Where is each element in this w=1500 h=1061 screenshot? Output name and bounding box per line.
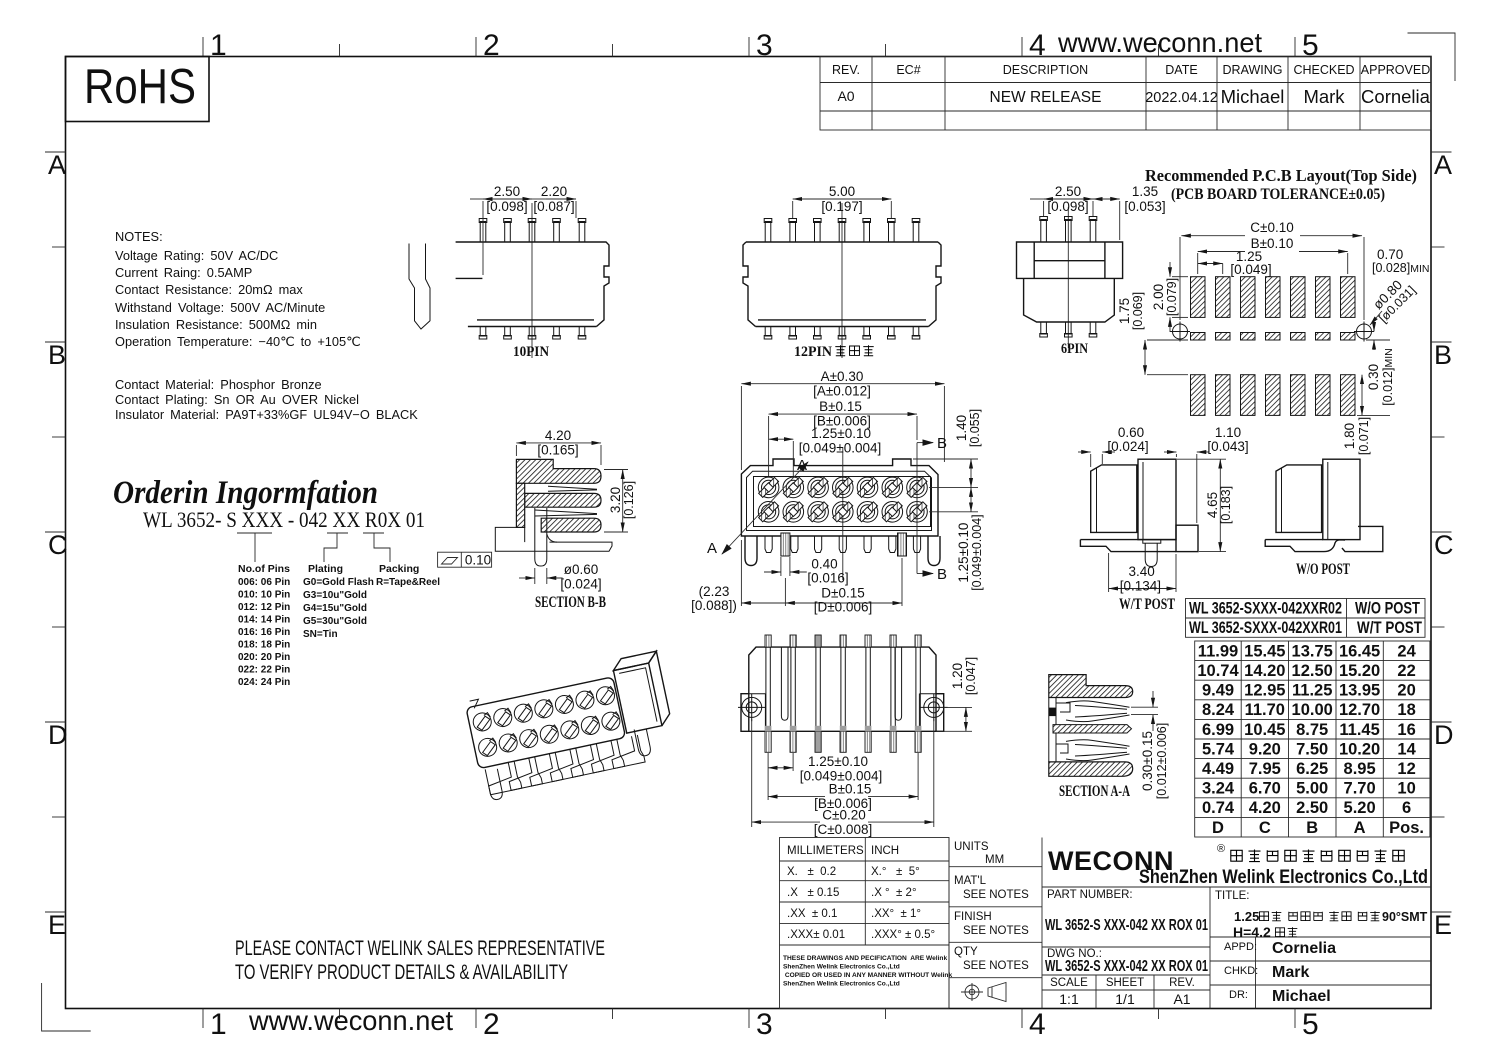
- svg-text:3: 3: [756, 1008, 773, 1041]
- svg-text:COPIED OR USED IN ANY MANNER W: COPIED OR USED IN ANY MANNER WITHOUT Wel…: [783, 972, 952, 979]
- svg-text:[0.165]: [0.165]: [537, 443, 578, 458]
- svg-text:Cornelia: Cornelia: [1272, 940, 1336, 957]
- svg-text:4.20: 4.20: [1249, 799, 1281, 817]
- svg-text:18: 18: [1397, 701, 1415, 719]
- svg-text:REV.: REV.: [1169, 977, 1195, 989]
- svg-text:010: 10 Pin: 010: 10 Pin: [238, 590, 290, 601]
- svg-text:10.74: 10.74: [1197, 662, 1239, 680]
- svg-text:020: 20 Pin: 020: 20 Pin: [238, 652, 290, 663]
- svg-text:Pos.: Pos.: [1389, 819, 1424, 837]
- svg-text:11.25: 11.25: [1292, 682, 1332, 700]
- svg-text:[0.183]: [0.183]: [1219, 486, 1233, 524]
- svg-text:[0.047]: [0.047]: [964, 657, 978, 695]
- svg-text:6.99: 6.99: [1202, 721, 1234, 739]
- svg-text:3.24: 3.24: [1202, 780, 1235, 798]
- svg-text:Michael: Michael: [1272, 988, 1331, 1005]
- svg-text:[0.098]: [0.098]: [1047, 199, 1088, 214]
- svg-text:10.45: 10.45: [1244, 721, 1285, 739]
- svg-text:APPROVED: APPROVED: [1361, 63, 1430, 77]
- svg-text:4.65: 4.65: [1205, 492, 1220, 518]
- svg-text:0.60: 0.60: [1118, 425, 1144, 440]
- svg-text:2.50: 2.50: [494, 184, 520, 199]
- svg-text:MM: MM: [985, 854, 1004, 866]
- svg-text:7.50: 7.50: [1296, 740, 1328, 758]
- svg-text:12.70: 12.70: [1339, 701, 1380, 719]
- svg-text:0.10: 0.10: [465, 553, 491, 568]
- svg-text:7.70: 7.70: [1344, 780, 1376, 798]
- svg-text:[0.197]: [0.197]: [821, 199, 862, 214]
- svg-text:4: 4: [1029, 1008, 1046, 1041]
- svg-text:REV.: REV.: [832, 63, 860, 77]
- svg-text:W/T POST: W/T POST: [1357, 619, 1422, 637]
- svg-text:6.25: 6.25: [1296, 760, 1328, 778]
- svg-text:X. ± 0.2: X. ± 0.2: [787, 866, 836, 878]
- svg-text:8.75: 8.75: [1296, 721, 1328, 739]
- svg-text:B: B: [937, 566, 947, 583]
- svg-text:[0.069]: [0.069]: [1131, 292, 1145, 330]
- svg-text:INCH: INCH: [871, 845, 899, 857]
- svg-text:NOTES:: NOTES:: [115, 229, 163, 244]
- svg-text:5: 5: [1302, 29, 1319, 62]
- svg-text:W/T POST: W/T POST: [1119, 596, 1175, 613]
- svg-text:MAT'L: MAT'L: [954, 875, 987, 887]
- svg-text:[0.024]: [0.024]: [1107, 439, 1148, 454]
- svg-text:WL 3652-S XXX-042 XX ROX 01: WL 3652-S XXX-042 XX ROX 01: [1045, 958, 1208, 975]
- svg-text:CHECKED: CHECKED: [1293, 63, 1354, 77]
- svg-text:11.70: 11.70: [1245, 701, 1285, 719]
- svg-text:www.weconn.net: www.weconn.net: [248, 1005, 453, 1036]
- svg-text:8.95: 8.95: [1344, 760, 1376, 778]
- svg-text:Packing: Packing: [379, 563, 419, 575]
- svg-text:2.00: 2.00: [1151, 284, 1166, 310]
- svg-text:22: 22: [1397, 662, 1415, 680]
- svg-text:1.20: 1.20: [950, 663, 965, 689]
- svg-text:QTY: QTY: [954, 946, 978, 958]
- svg-text:Mark: Mark: [1272, 964, 1309, 981]
- svg-text:A: A: [1434, 150, 1452, 180]
- svg-text:[C±0.008]: [C±0.008]: [814, 822, 872, 837]
- svg-text:.XXX± 0.01: .XXX± 0.01: [787, 929, 845, 941]
- svg-text:[0.043]: [0.043]: [1207, 439, 1248, 454]
- svg-text:1.10: 1.10: [1215, 425, 1241, 440]
- svg-text:6: 6: [1402, 799, 1411, 817]
- svg-text:024: 24 Pin: 024: 24 Pin: [238, 677, 290, 688]
- svg-text:022: 22 Pin: 022: 22 Pin: [238, 665, 290, 676]
- svg-text:1.25: 1.25: [1234, 909, 1259, 924]
- svg-text:X.° ± 5°: X.° ± 5°: [871, 866, 920, 878]
- svg-text:[0.049±0.004]: [0.049±0.004]: [799, 441, 881, 456]
- svg-text:CHKD:: CHKD:: [1224, 965, 1258, 977]
- svg-text:012: 12 Pin: 012: 12 Pin: [238, 602, 290, 613]
- svg-text:PLEASE CONTACT WELINK SALES RE: PLEASE CONTACT WELINK SALES REPRESENTATI…: [235, 937, 605, 960]
- svg-text:®: ®: [1217, 843, 1225, 855]
- svg-text:B: B: [1434, 340, 1452, 370]
- svg-text:Contact Plating: Sn OR Au OVER: Contact Plating: Sn OR Au OVER Nickel: [115, 392, 359, 407]
- svg-text:C±0.20: C±0.20: [822, 808, 865, 823]
- svg-text:4.20: 4.20: [545, 428, 571, 443]
- svg-text:5.00: 5.00: [1296, 780, 1328, 798]
- svg-text:(2.23: (2.23: [699, 584, 730, 599]
- svg-text:014: 14 Pin: 014: 14 Pin: [238, 615, 290, 626]
- svg-text:1: 1: [210, 29, 227, 62]
- svg-text:G0=Gold Flash: G0=Gold Flash: [303, 577, 374, 588]
- svg-text:A: A: [707, 540, 717, 557]
- svg-text:Contact Material: Phosphor Bro: Contact Material: Phosphor Bronze: [115, 377, 322, 392]
- svg-text:Recommended P.C.B Layout(Top S: Recommended P.C.B Layout(Top Side): [1145, 166, 1417, 185]
- svg-text:12.50: 12.50: [1292, 662, 1333, 680]
- svg-text:11.45: 11.45: [1339, 721, 1379, 739]
- svg-text:www.weconn.net: www.weconn.net: [1057, 27, 1262, 58]
- svg-text:016: 16 Pin: 016: 16 Pin: [238, 627, 290, 638]
- svg-text:.XXX° ± 0.5°: .XXX° ± 0.5°: [871, 929, 935, 941]
- svg-text:8.24: 8.24: [1202, 701, 1235, 719]
- svg-text:C: C: [1259, 819, 1271, 837]
- svg-text:E: E: [48, 910, 66, 940]
- svg-text:10: 10: [1397, 780, 1415, 798]
- svg-text:D: D: [1212, 819, 1224, 837]
- svg-text:.X ± 0.15: .X ± 0.15: [787, 887, 839, 899]
- svg-text:R=Tape&Reel: R=Tape&Reel: [376, 577, 440, 588]
- svg-text:10PIN: 10PIN: [513, 344, 549, 360]
- svg-text:A: A: [1354, 819, 1366, 837]
- svg-text:D±0.15: D±0.15: [821, 586, 864, 601]
- svg-text:B±0.15: B±0.15: [829, 782, 872, 797]
- svg-text:24: 24: [1397, 643, 1416, 661]
- svg-text:ShenZhen Welink Electronics Co: ShenZhen Welink Electronics Co.,Ltd: [1139, 867, 1428, 888]
- svg-text:Mark: Mark: [1303, 86, 1345, 107]
- svg-text:3.40: 3.40: [1128, 564, 1154, 579]
- svg-text:WL 3652- S XXX - 042 XX R0X: WL 3652- S XXX - 042 XX R0X 01: [143, 507, 425, 532]
- svg-text:FINISH: FINISH: [954, 911, 992, 923]
- svg-text:16: 16: [1397, 721, 1415, 739]
- svg-text:SHEET: SHEET: [1106, 977, 1144, 989]
- svg-text:Insulator Material: PA9T+33%GF: Insulator Material: PA9T+33%GF UL94V−O B…: [115, 407, 418, 422]
- svg-text:Voltage Rating: 50V AC/DC: Voltage Rating: 50V AC/DC: [115, 248, 278, 263]
- svg-text:DRAWING: DRAWING: [1223, 63, 1283, 77]
- svg-text:Insulation Resistance: 500MΩ m: Insulation Resistance: 500MΩ min: [115, 317, 317, 332]
- svg-text:H=4.2: H=4.2: [1233, 924, 1271, 940]
- svg-text:[A±0.012]: [A±0.012]: [813, 384, 871, 399]
- svg-text:APPD:: APPD:: [1224, 941, 1257, 953]
- svg-text:14: 14: [1397, 740, 1416, 758]
- svg-text:20: 20: [1397, 682, 1415, 700]
- svg-text:SCALE: SCALE: [1050, 977, 1088, 989]
- svg-text:2022.04.12: 2022.04.12: [1145, 90, 1218, 106]
- svg-text:Orderin Ingormfation: Orderin Ingormfation: [113, 475, 378, 511]
- svg-text:WL 3652-S XXX-042 XX ROX 01: WL 3652-S XXX-042 XX ROX 01: [1045, 917, 1208, 934]
- svg-text:G4=15u"Gold: G4=15u"Gold: [303, 603, 367, 614]
- svg-text:ShenZhen Welink Electronics Co: ShenZhen Welink Electronics Co.,Ltd: [783, 981, 900, 988]
- svg-text:ShenZhen Welink Electronics Co: ShenZhen Welink Electronics Co.,Ltd: [783, 964, 900, 971]
- svg-text:1.35: 1.35: [1132, 184, 1158, 199]
- svg-text:A±0.30: A±0.30: [821, 369, 864, 384]
- svg-text:10.20: 10.20: [1339, 740, 1380, 758]
- svg-text:[0.055]: [0.055]: [968, 409, 982, 447]
- svg-text:D: D: [48, 720, 68, 750]
- svg-text:006: 06 Pin: 006: 06 Pin: [238, 577, 290, 588]
- svg-text:[0.134]: [0.134]: [1120, 579, 1161, 594]
- svg-text:PART NUMBER:: PART NUMBER:: [1047, 889, 1133, 901]
- svg-text:WL 3652-SXXX-042XXR01: WL 3652-SXXX-042XXR01: [1189, 619, 1342, 637]
- svg-text:D: D: [1434, 720, 1454, 750]
- svg-text:[0.049±0.004]: [0.049±0.004]: [970, 514, 984, 590]
- svg-text:[0.028]MIN: [0.028]MIN: [1372, 261, 1429, 275]
- svg-text:90°SMT: 90°SMT: [1382, 910, 1428, 924]
- svg-text:DATE: DATE: [1165, 63, 1197, 77]
- svg-text:0.70: 0.70: [1377, 247, 1403, 262]
- svg-text:7.95: 7.95: [1249, 760, 1281, 778]
- svg-text:0.74: 0.74: [1202, 799, 1235, 817]
- svg-text:11.99: 11.99: [1198, 643, 1238, 661]
- svg-text:018: 18 Pin: 018: 18 Pin: [238, 640, 290, 651]
- svg-text:1.25±0.10: 1.25±0.10: [808, 754, 868, 769]
- svg-text:SEE NOTES: SEE NOTES: [963, 960, 1029, 972]
- svg-text:15.20: 15.20: [1339, 662, 1380, 680]
- svg-text:2.50: 2.50: [1296, 799, 1328, 817]
- svg-text:3: 3: [756, 29, 773, 62]
- svg-text:1.80: 1.80: [1342, 423, 1357, 449]
- svg-text:13.75: 13.75: [1292, 643, 1333, 661]
- svg-text:6.70: 6.70: [1249, 780, 1281, 798]
- svg-text:B±0.15: B±0.15: [819, 399, 862, 414]
- svg-text:Withstand Voltage: 500V AC/Min: Withstand Voltage: 500V AC/Minute: [115, 300, 325, 315]
- svg-text:SN=Tin: SN=Tin: [303, 629, 338, 640]
- svg-text:(PCB BOARD TOLERANCE±0.05): (PCB BOARD TOLERANCE±0.05): [1171, 186, 1385, 203]
- svg-text:No.of Pins: No.of Pins: [238, 563, 290, 575]
- svg-text:DR:: DR:: [1229, 989, 1248, 1001]
- svg-text:1.40: 1.40: [954, 415, 969, 441]
- svg-text:C±0.10: C±0.10: [1250, 220, 1293, 235]
- svg-text:.XX ± 0.1: .XX ± 0.1: [787, 908, 837, 920]
- svg-text:A1: A1: [1173, 991, 1190, 1007]
- svg-text:A: A: [797, 457, 807, 474]
- svg-text:G5=30u"Gold: G5=30u"Gold: [303, 616, 367, 627]
- svg-text:9.49: 9.49: [1202, 682, 1234, 700]
- svg-text:EC#: EC#: [896, 63, 920, 77]
- svg-text:MILLIMETERS: MILLIMETERS: [787, 845, 864, 857]
- svg-text:0.30: 0.30: [1366, 364, 1381, 390]
- svg-text:B: B: [48, 340, 66, 370]
- svg-text:2.20: 2.20: [541, 184, 567, 199]
- svg-text:THESE DRAWINGS AND PECIFICATIO: THESE DRAWINGS AND PECIFICATION ARE Weli…: [783, 955, 947, 962]
- svg-text:G3=10u"Gold: G3=10u"Gold: [303, 590, 367, 601]
- svg-text:Cornelia: Cornelia: [1361, 86, 1431, 107]
- svg-text:5.00: 5.00: [829, 184, 855, 199]
- svg-text:Contact Resistance: 20mΩ max: Contact Resistance: 20mΩ max: [115, 282, 303, 297]
- svg-text:[0.012]MIN: [0.012]MIN: [1381, 348, 1395, 405]
- svg-text:.XX° ± 1°: .XX° ± 1°: [871, 908, 921, 920]
- svg-text:A0: A0: [837, 88, 854, 104]
- svg-text:3.20: 3.20: [608, 487, 623, 513]
- svg-text:6PIN: 6PIN: [1061, 341, 1088, 357]
- svg-text:Michael: Michael: [1221, 86, 1285, 107]
- svg-text:Plating: Plating: [308, 563, 343, 575]
- svg-text:TITLE:: TITLE:: [1215, 890, 1250, 902]
- svg-text:1.25±0.10: 1.25±0.10: [956, 523, 971, 583]
- svg-text:[0.012±0.006]: [0.012±0.006]: [1155, 723, 1169, 799]
- svg-text:15.45: 15.45: [1244, 643, 1285, 661]
- svg-text:DESCRIPTION: DESCRIPTION: [1003, 63, 1088, 77]
- svg-text:1.75: 1.75: [1117, 298, 1132, 324]
- svg-text:[0.088]): [0.088]): [691, 598, 737, 613]
- svg-text:RoHS: RoHS: [84, 60, 196, 114]
- svg-text:[0.049]: [0.049]: [1230, 262, 1271, 277]
- svg-text:9.20: 9.20: [1249, 740, 1281, 758]
- svg-text:[0.126]: [0.126]: [622, 481, 636, 519]
- svg-text:C: C: [1434, 530, 1454, 560]
- svg-text:13.95: 13.95: [1339, 682, 1380, 700]
- svg-text:1: 1: [210, 1008, 227, 1041]
- svg-text:0.40: 0.40: [811, 557, 837, 572]
- svg-text:[0.087]: [0.087]: [533, 199, 574, 214]
- svg-text:12: 12: [1397, 760, 1415, 778]
- svg-text:4: 4: [1029, 29, 1046, 62]
- svg-text:[0.024]: [0.024]: [560, 577, 601, 592]
- svg-text:.X ° ± 2°: .X ° ± 2°: [871, 887, 917, 899]
- svg-text:Operation Temperature: −40℃ to: Operation Temperature: −40℃ to +105℃: [115, 334, 361, 349]
- svg-text:C: C: [48, 530, 68, 560]
- svg-text:2: 2: [483, 1008, 500, 1041]
- svg-text:SECTION B-B: SECTION B-B: [535, 594, 606, 611]
- svg-text:B: B: [937, 435, 947, 452]
- svg-text:5.20: 5.20: [1344, 799, 1376, 817]
- svg-text:5: 5: [1302, 1008, 1319, 1041]
- svg-text:TO VERIFY PRODUCT DETAILS & AV: TO VERIFY PRODUCT DETAILS & AVAILABILITY: [235, 961, 568, 984]
- svg-text:2: 2: [483, 29, 500, 62]
- svg-text:Current Raing: 0.5AMP: Current Raing: 0.5AMP: [115, 265, 252, 280]
- svg-text:B: B: [1306, 819, 1318, 837]
- svg-text:SEE NOTES: SEE NOTES: [963, 889, 1029, 901]
- svg-text:A: A: [48, 150, 66, 180]
- svg-text:4.49: 4.49: [1202, 760, 1234, 778]
- svg-text:0.30±0.15: 0.30±0.15: [1140, 731, 1155, 791]
- svg-text:[0.098]: [0.098]: [486, 199, 527, 214]
- svg-text:16.45: 16.45: [1339, 643, 1380, 661]
- svg-text:W/O POST: W/O POST: [1296, 561, 1350, 578]
- svg-text:SECTION A-A: SECTION A-A: [1059, 783, 1130, 800]
- svg-text:E: E: [1434, 910, 1452, 940]
- svg-text:[0.016]: [0.016]: [807, 571, 848, 586]
- svg-text:SEE NOTES: SEE NOTES: [963, 925, 1029, 937]
- svg-text:1.25±0.10: 1.25±0.10: [811, 426, 871, 441]
- svg-text:12PIN: 12PIN: [794, 344, 832, 360]
- svg-text:[D±0.006]: [D±0.006]: [814, 600, 872, 615]
- svg-text:10.00: 10.00: [1292, 701, 1333, 719]
- svg-text:WL 3652-SXXX-042XXR02: WL 3652-SXXX-042XXR02: [1189, 600, 1342, 618]
- svg-text:1/1: 1/1: [1115, 991, 1135, 1007]
- svg-text:[0.071]: [0.071]: [1357, 417, 1371, 455]
- svg-text:14.20: 14.20: [1244, 662, 1285, 680]
- svg-text:[0.079]: [0.079]: [1165, 278, 1179, 316]
- svg-text:2.50: 2.50: [1055, 184, 1081, 199]
- svg-text:UNITS: UNITS: [954, 841, 989, 853]
- svg-text:[0.053]: [0.053]: [1124, 199, 1165, 214]
- svg-text:W/O POST: W/O POST: [1355, 600, 1420, 618]
- svg-text:NEW RELEASE: NEW RELEASE: [990, 89, 1102, 106]
- svg-text:1:1: 1:1: [1059, 991, 1079, 1007]
- svg-text:ø0.60: ø0.60: [564, 562, 599, 577]
- svg-text:12.95: 12.95: [1244, 682, 1285, 700]
- svg-text:5.74: 5.74: [1202, 740, 1235, 758]
